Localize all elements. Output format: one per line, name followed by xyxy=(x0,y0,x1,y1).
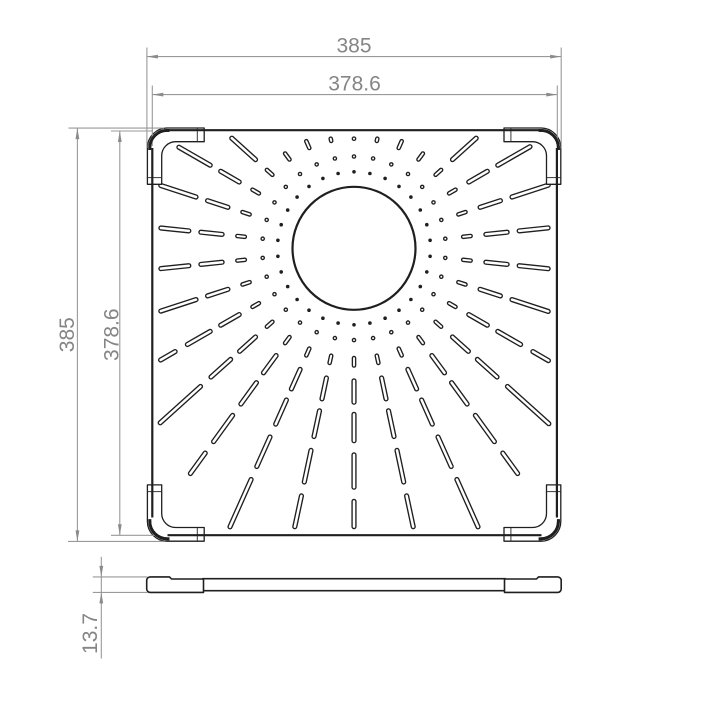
svg-text:378.6: 378.6 xyxy=(328,73,381,96)
svg-text:13.7: 13.7 xyxy=(79,613,102,654)
svg-text:385: 385 xyxy=(56,317,79,352)
svg-text:385: 385 xyxy=(336,35,371,58)
svg-text:378.6: 378.6 xyxy=(100,308,123,361)
